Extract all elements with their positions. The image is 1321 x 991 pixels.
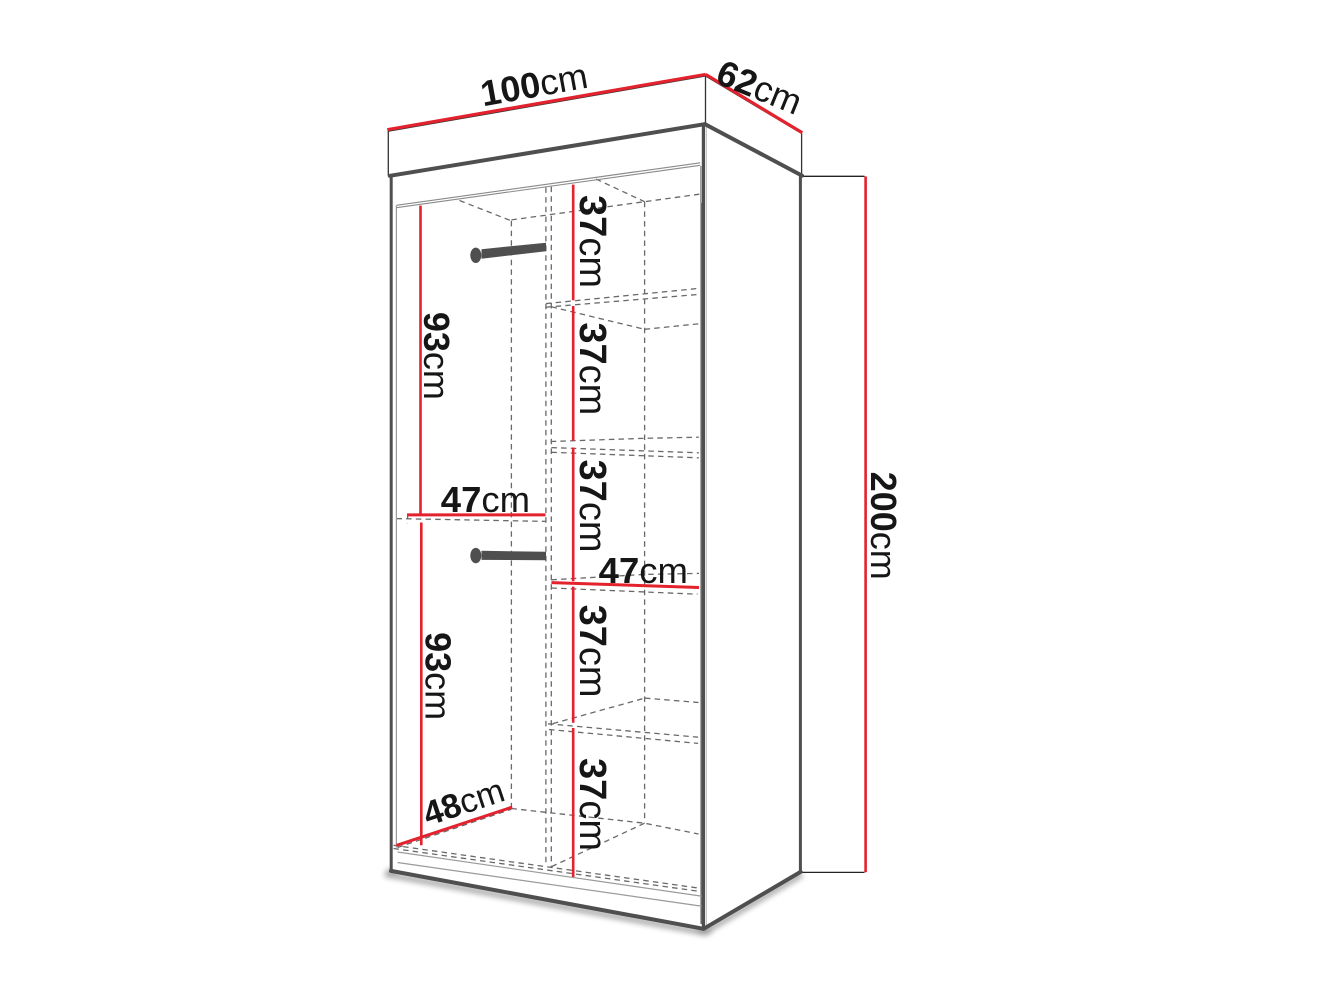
svg-text:37cm: 37cm [571,460,613,553]
svg-text:47cm: 47cm [441,479,530,520]
svg-text:47cm: 47cm [599,550,688,591]
svg-text:37cm: 37cm [571,758,613,851]
svg-text:93cm: 93cm [418,632,459,720]
svg-text:200cm: 200cm [864,472,905,580]
svg-text:37cm: 37cm [571,605,613,698]
svg-text:37cm: 37cm [571,322,613,415]
svg-text:93cm: 93cm [417,312,458,400]
svg-text:37cm: 37cm [571,195,613,288]
